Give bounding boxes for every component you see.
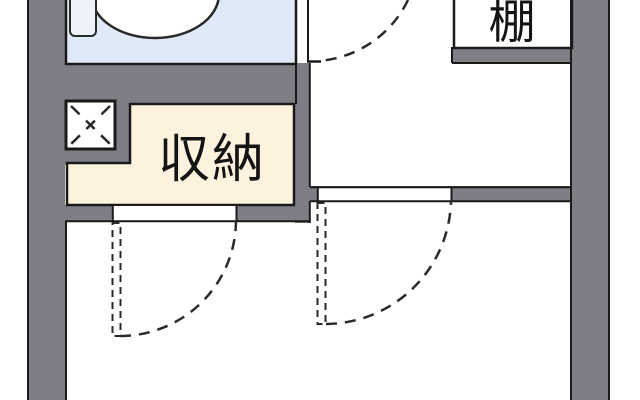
floorplan-drawing — [0, 0, 640, 400]
kitchen-door-opening — [317, 188, 452, 201]
storage-door-leaf — [113, 223, 121, 336]
kitchen-door-swing-arc — [326, 201, 451, 324]
right-wall — [572, 0, 608, 400]
pipe-shaft-box — [66, 101, 115, 149]
shelf-label: 棚 — [454, 0, 572, 43]
entry-door-swing-arc — [318, 0, 408, 61]
storage-door-opening — [112, 206, 237, 221]
storage-label: 収納 — [130, 104, 294, 205]
mid-wall-strip — [295, 63, 310, 223]
kitchen-door-leaf — [318, 203, 326, 324]
left-wall — [29, 0, 65, 400]
toilet-tank-icon — [70, 0, 96, 36]
storage-door-swing-arc — [120, 221, 236, 336]
top-wall-band — [27, 63, 310, 104]
floorplan-canvas: 棚 収納 — [0, 0, 640, 400]
